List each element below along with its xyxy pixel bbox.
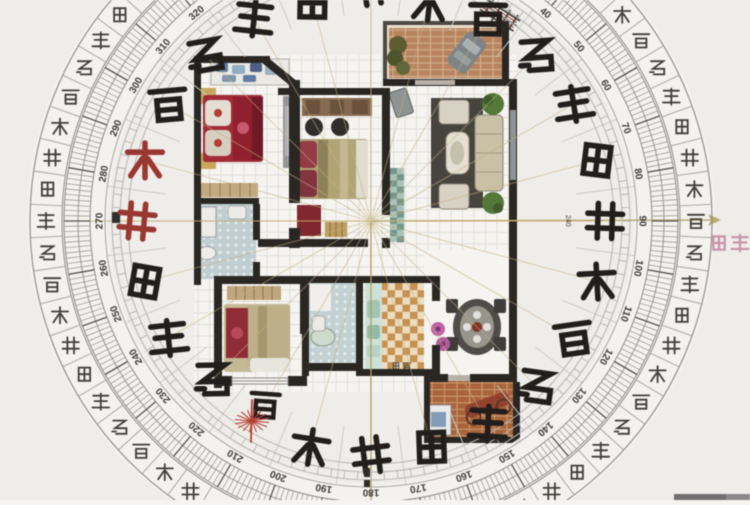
- svg-text:240: 240: [564, 215, 571, 227]
- svg-text:90: 90: [636, 215, 647, 227]
- svg-text:270: 270: [95, 212, 106, 229]
- svg-text:180: 180: [362, 486, 379, 497]
